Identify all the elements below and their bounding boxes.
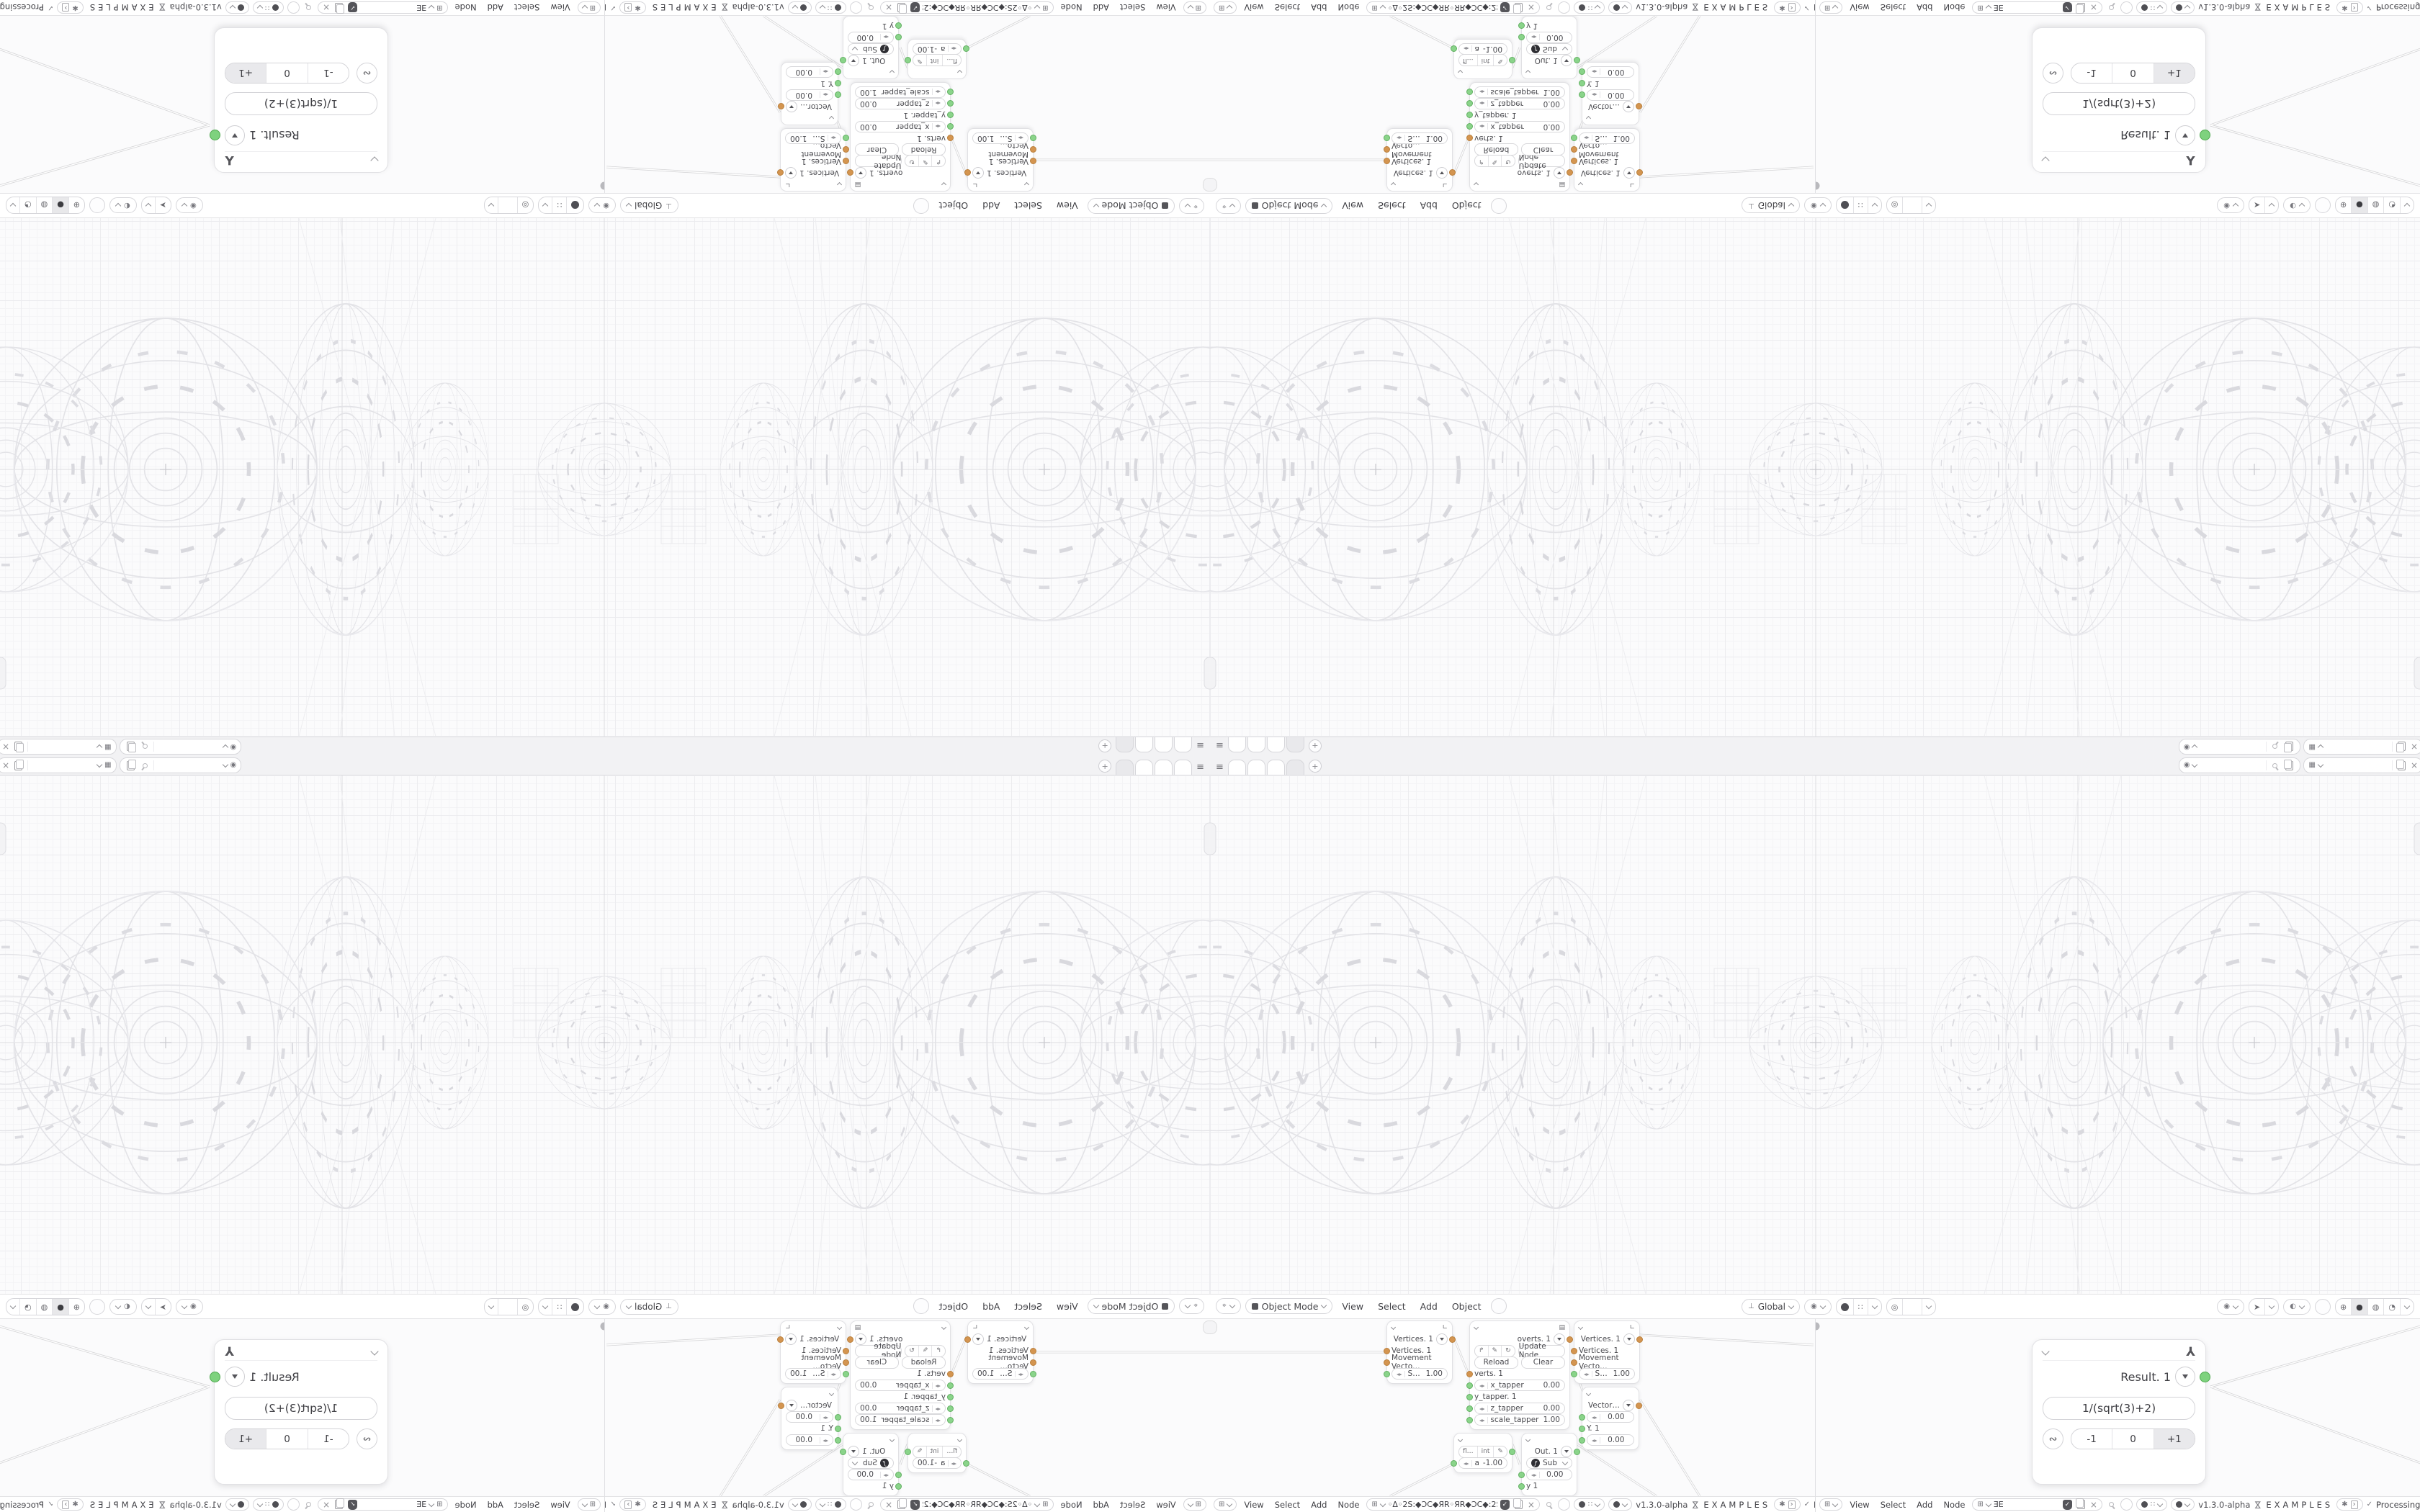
gizmo-dropdown[interactable] — [142, 197, 155, 213]
dropdown-button[interactable] — [785, 167, 797, 179]
collapse-chevron-icon[interactable] — [829, 116, 834, 121]
input-socket[interactable] — [1579, 69, 1585, 76]
menu-node[interactable]: Node — [1943, 1500, 1965, 1510]
xray-toggle[interactable] — [2315, 1299, 2331, 1315]
header-circle-button[interactable] — [850, 1, 862, 14]
shading-material-button[interactable]: ◍ — [36, 1299, 53, 1315]
update-node-button[interactable]: Update Node — [855, 156, 902, 168]
value-slider[interactable]: ◂▸ x_tapper 0.00 — [855, 121, 946, 132]
workspace-tab[interactable] — [1174, 760, 1192, 775]
input-socket[interactable] — [1466, 1417, 1473, 1423]
math-node[interactable]: fl… int ✎ ◂▸ a -1.00 — [1453, 39, 1512, 79]
value-slider[interactable]: ◂▸ Stren 1.00 — [1579, 132, 1635, 144]
drag-handle-icon[interactable]: ◂▸ — [1464, 46, 1472, 53]
vector-node[interactable]: Vector… ◂▸ 0.00 Y. 1 — [1582, 1387, 1639, 1450]
math-node[interactable]: fl… int ✎ ◂▸ a -1.00 — [907, 39, 967, 79]
dropdown-button[interactable] — [786, 101, 797, 112]
node-tree-name-field[interactable]: ƎE — [1994, 3, 2060, 12]
node-header[interactable]: ▤ — [855, 1323, 946, 1332]
drag-handle-icon[interactable]: ◂▸ — [820, 92, 828, 99]
collapse-chevron-icon[interactable] — [1458, 1436, 1463, 1441]
node-header[interactable] — [1458, 1436, 1507, 1444]
int-tab[interactable]: int — [926, 1446, 943, 1457]
drag-handle-icon[interactable]: ◂▸ — [932, 1405, 941, 1412]
node-canvas[interactable]: ⅄ Result. 1 1/(sqrt(3)+2) ∾ -1 0 +1 — [1816, 1319, 2420, 1496]
shading-rendered-button[interactable]: ◔ — [2384, 197, 2401, 213]
type-switch[interactable]: fl… int ✎ — [1458, 1446, 1507, 1458]
overlay-controls[interactable] — [225, 1, 249, 14]
view-layer-selector[interactable]: ▦ × — [0, 757, 117, 773]
output-socket[interactable] — [777, 1336, 784, 1343]
script-node[interactable]: ▤ overts. 1 ↱ ✎ ↻ Update Node — [850, 82, 951, 192]
terminal-icon[interactable]: › — [62, 1500, 69, 1509]
node-header[interactable]: ▤ — [855, 180, 946, 189]
view-layer-field[interactable] — [27, 760, 94, 770]
node-header[interactable] — [913, 68, 962, 76]
app-menu-icon[interactable]: ≡ — [1196, 739, 1204, 750]
input-socket[interactable] — [1030, 1371, 1036, 1377]
collapse-chevron-icon[interactable] — [1024, 182, 1029, 187]
vertices-node[interactable]: ∟ Vertices. 1 Vertices. 1 Movement Vecto… — [967, 128, 1034, 192]
input-socket[interactable] — [835, 1426, 841, 1432]
menu-node[interactable]: Node — [1061, 3, 1083, 13]
workspace-tab[interactable] — [1155, 760, 1173, 775]
transform-orientation-dropdown[interactable]: ⊥ Global — [620, 197, 678, 213]
tool-buttons[interactable]: ✱ › — [619, 1, 645, 14]
input-socket[interactable] — [947, 1394, 954, 1400]
workspace-tab[interactable] — [1155, 737, 1173, 752]
output-socket[interactable] — [1574, 1449, 1580, 1455]
terminal-icon[interactable]: › — [2351, 4, 2358, 12]
script-tools[interactable]: ↱ ✎ ↻ — [1474, 1345, 1515, 1357]
value-field[interactable]: ◂▸ 0.00 — [786, 1411, 833, 1423]
examples-button[interactable]: EXAMPLES — [650, 3, 717, 13]
node-header[interactable]: ∟ — [785, 1323, 841, 1332]
proportional-falloff[interactable] — [1903, 197, 1922, 213]
plus-one-button[interactable]: +1 — [225, 63, 266, 83]
out-node[interactable]: Out. 1 ƒ Sub ◂▸ — [843, 1433, 899, 1496]
pin-icon[interactable] — [141, 743, 148, 750]
node-header[interactable] — [1458, 68, 1507, 76]
editor-type-button[interactable]: ⊞ — [1214, 1498, 1237, 1511]
menu-view[interactable]: View — [1244, 3, 1263, 13]
pencil-icon[interactable]: ✎ — [1489, 1346, 1502, 1356]
node-header[interactable]: ∟ — [1391, 180, 1448, 189]
plus-one-button[interactable]: +1 — [2154, 63, 2195, 83]
arrow-in-icon[interactable]: ↱ — [1475, 156, 1489, 167]
header-circle-button[interactable] — [1558, 1498, 1570, 1511]
output-socket[interactable] — [778, 104, 784, 110]
snapping-controls[interactable]: ∷ — [815, 1, 846, 14]
drag-handle-icon[interactable]: ◂▸ — [1592, 69, 1600, 76]
input-socket[interactable] — [1571, 1359, 1577, 1366]
value-slider[interactable]: ◂▸ scale_tapper 1.00 — [855, 86, 946, 98]
view-layer-selector[interactable]: ▦ × — [0, 739, 117, 755]
dropdown-button[interactable] — [972, 167, 984, 179]
editor-type-button[interactable]: ⌖ — [1179, 1298, 1204, 1314]
editor-type-button[interactable]: ⊞ — [1183, 1498, 1206, 1511]
shading-material-button[interactable]: ◍ — [2368, 1299, 2385, 1315]
menu-select[interactable]: Select — [514, 3, 539, 13]
drag-handle-icon[interactable]: ◂▸ — [948, 1460, 956, 1467]
proportional-dropdown[interactable] — [1922, 197, 1935, 213]
menu-view[interactable]: View — [1156, 1500, 1175, 1510]
header-extra-button[interactable] — [913, 1298, 929, 1314]
header-circle-button[interactable] — [2120, 1498, 2133, 1511]
dropdown-button[interactable] — [225, 125, 245, 145]
fake-user-shield-icon[interactable]: ✓ — [1500, 3, 1510, 13]
menu-object[interactable]: Object — [1452, 201, 1482, 212]
collapse-chevron-icon[interactable] — [2041, 1347, 2049, 1355]
plus-one-button[interactable]: +1 — [2154, 1429, 2195, 1449]
editor-type-button[interactable]: ⌖ — [1216, 198, 1241, 214]
vertices-node[interactable]: ∟ Vertices. 1 Vertices. 1 Movement Vecto… — [780, 128, 846, 192]
header-circle-button[interactable] — [850, 1498, 862, 1511]
value-slider[interactable]: ◂▸ scale_tapper 1.00 — [1474, 86, 1565, 98]
overlay-controls[interactable] — [1608, 1498, 1632, 1511]
output-socket[interactable] — [210, 1372, 220, 1382]
vector-node[interactable]: Vector… ◂▸ 0.00 Y. 1 — [781, 1387, 838, 1450]
node-canvas[interactable]: ⅄ Result. 1 1/(sqrt(3)+2) ∾ -1 0 +1 — [0, 16, 604, 193]
shading-solid-button[interactable]: ● — [2352, 1299, 2368, 1315]
dropdown-button[interactable] — [848, 55, 859, 66]
drag-handle-icon[interactable]: ◂▸ — [1592, 1437, 1600, 1444]
input-socket[interactable] — [1571, 135, 1577, 142]
value-field[interactable]: ◂▸ 0.00 — [848, 32, 894, 43]
value-slider[interactable]: ◂▸ x_tapper 0.00 — [855, 1380, 946, 1391]
scene-selector[interactable]: ◉ — [120, 739, 242, 755]
input-socket[interactable] — [1466, 135, 1473, 142]
node-header[interactable]: ∟ — [1391, 1323, 1448, 1332]
menu-view[interactable]: View — [550, 3, 570, 13]
input-socket[interactable] — [843, 1359, 849, 1366]
proportional-dropdown[interactable] — [485, 1299, 498, 1315]
workspace-tab[interactable] — [1247, 737, 1265, 752]
float-tab[interactable]: fl… — [1459, 1446, 1478, 1457]
pencil-icon[interactable]: ✎ — [918, 1346, 932, 1356]
input-socket[interactable] — [1518, 23, 1525, 30]
drag-handle-icon[interactable]: ◂▸ — [1015, 1371, 1023, 1377]
formula-field[interactable]: 1/(sqrt(3)+2) — [2043, 92, 2195, 115]
minus-one-button[interactable]: -1 — [308, 1429, 349, 1449]
menu-view[interactable]: View — [1156, 3, 1175, 13]
pivot-point-dropdown[interactable]: ◉ — [1804, 1299, 1832, 1315]
visibility-dropdown[interactable]: ◉ — [176, 197, 203, 213]
copy-icon[interactable] — [127, 761, 135, 770]
snap-magnet-icon[interactable] — [1837, 197, 1854, 213]
output-socket[interactable] — [905, 58, 911, 64]
dropdown-button[interactable] — [1561, 55, 1572, 66]
node-header[interactable]: ∟ — [1579, 1323, 1635, 1332]
proportional-edit-controls[interactable]: ◎ — [484, 197, 534, 214]
snap-with-icon[interactable]: ∷ — [552, 197, 566, 213]
value-field[interactable]: ◂▸ 0.00 — [1587, 1411, 1634, 1423]
input-socket[interactable] — [1466, 124, 1473, 130]
unlink-icon[interactable]: × — [2090, 1500, 2097, 1510]
tool-buttons[interactable]: ✱ › — [2336, 1498, 2362, 1511]
menu-view[interactable]: View — [1244, 1500, 1263, 1510]
collapse-chevron-icon[interactable] — [957, 70, 962, 75]
drag-handle-icon[interactable]: ◂▸ — [1584, 1371, 1592, 1377]
input-socket[interactable] — [947, 1405, 954, 1412]
input-socket[interactable] — [1466, 1371, 1473, 1377]
drag-handle-icon[interactable]: ◂▸ — [1592, 1414, 1600, 1421]
dropdown-button[interactable] — [225, 1367, 245, 1387]
vertices-node[interactable]: ∟ Vertices. 1 Vertices. 1 Movement Vecto… — [780, 1320, 846, 1384]
header-circle-button[interactable] — [287, 1, 300, 14]
proportional-edit-controls[interactable]: ◎ — [1886, 197, 1937, 214]
dropdown-button[interactable] — [1623, 101, 1634, 112]
zero-button[interactable]: 0 — [266, 1429, 307, 1449]
fake-user-shield-icon[interactable]: ✓ — [348, 1500, 357, 1510]
menu-view[interactable]: View — [1057, 1301, 1078, 1312]
unlink-icon[interactable]: × — [323, 3, 330, 13]
terminal-icon[interactable]: › — [624, 1500, 632, 1509]
value-field[interactable]: ◂▸ 0.00 — [786, 1434, 833, 1446]
node-header[interactable]: ⅄ — [2043, 151, 2195, 168]
drag-handle-icon[interactable]: ◂▸ — [820, 1414, 828, 1421]
refresh-icon[interactable]: ↻ — [905, 156, 918, 167]
unlink-icon[interactable]: × — [2090, 3, 2097, 13]
header-extra-button[interactable] — [1491, 1298, 1507, 1314]
clear-button[interactable]: Clear — [1521, 144, 1565, 156]
collapse-chevron-icon[interactable] — [1024, 1324, 1029, 1329]
workspace-tab[interactable] — [1247, 760, 1265, 775]
result-node[interactable]: ⅄ Result. 1 1/(sqrt(3)+2) ∾ -1 0 +1 — [2032, 27, 2206, 173]
viewport-3d[interactable] — [0, 775, 1210, 1294]
type-switch[interactable]: fl… int ✎ — [913, 1446, 962, 1458]
menu-node[interactable]: Node — [455, 1500, 477, 1510]
transform-orientation-dropdown[interactable]: ⊥ Global — [620, 1299, 678, 1315]
snapping-controls[interactable]: ∷ — [538, 197, 584, 214]
menu-select[interactable]: Select — [1120, 1500, 1145, 1510]
copy-icon[interactable] — [2285, 761, 2293, 770]
node-tree-name-field[interactable]: ◦Δ◦2S:◆ƆC◆ЯR◦ЯR◆ƆC◆:2S◦Δ◦ — [923, 1500, 1032, 1509]
script-tools[interactable]: ↱ ✎ ↻ — [1474, 156, 1515, 168]
proportional-dropdown[interactable] — [485, 197, 498, 213]
visibility-dropdown[interactable]: ◉ — [176, 1299, 203, 1315]
node-header[interactable]: ∟ — [972, 180, 1028, 189]
menu-select[interactable]: Select — [1275, 1500, 1300, 1510]
zero-button[interactable]: 0 — [2112, 63, 2154, 83]
plus-one-button[interactable]: +1 — [225, 1429, 266, 1449]
fake-user-shield-icon[interactable]: ✓ — [1500, 1500, 1510, 1510]
proportional-edit-controls[interactable]: ◎ — [1886, 1298, 1937, 1315]
drag-handle-icon[interactable]: ◂▸ — [1479, 101, 1488, 107]
unlink-icon[interactable]: × — [323, 1500, 330, 1510]
zero-button[interactable]: 0 — [266, 63, 307, 83]
drag-handle-icon[interactable]: ◂▸ — [820, 1437, 828, 1444]
value-slider[interactable]: ◂▸ a -1.00 — [913, 1457, 962, 1469]
transform-orientation-dropdown[interactable]: ⊥ Global — [1742, 1299, 1800, 1315]
pin-icon[interactable] — [305, 1501, 313, 1508]
input-socket[interactable] — [843, 1371, 849, 1377]
new-copy-icon[interactable] — [2077, 1500, 2085, 1509]
value-slider[interactable]: ◂▸ Stren 1.00 — [1391, 132, 1448, 144]
input-socket[interactable] — [1579, 1414, 1585, 1421]
node-header[interactable] — [1526, 1436, 1572, 1444]
value-slider[interactable]: ◂▸ a -1.00 — [1458, 43, 1507, 55]
node-header[interactable] — [848, 1436, 894, 1444]
loop-button[interactable]: ∾ — [2043, 1428, 2063, 1449]
drag-handle-icon[interactable]: ◂▸ — [828, 1371, 836, 1377]
input-socket[interactable] — [1571, 1348, 1577, 1354]
editor-type-button[interactable]: ⊞ — [578, 1498, 601, 1511]
editor-type-button[interactable]: ⊞ — [578, 1, 601, 14]
collapse-chevron-icon[interactable] — [829, 1390, 834, 1395]
unlink-icon[interactable]: × — [1528, 3, 1535, 13]
scene-selector[interactable]: ◉ — [2179, 739, 2301, 755]
reload-button[interactable]: Reload — [1474, 1356, 1518, 1369]
node-header[interactable]: ⅄ — [225, 151, 377, 168]
dropdown-button[interactable] — [786, 1400, 797, 1411]
pin-icon[interactable] — [1545, 4, 1552, 12]
viewport-3d[interactable] — [1210, 775, 2420, 1294]
refresh-icon[interactable]: ↻ — [905, 1346, 918, 1356]
menu-add[interactable]: Add — [982, 1301, 1000, 1312]
proportional-falloff[interactable] — [498, 197, 517, 213]
menu-node[interactable]: Node — [1337, 3, 1359, 13]
output-socket[interactable] — [964, 1336, 971, 1343]
dropdown-button[interactable] — [1623, 167, 1635, 179]
script-nodes-icon[interactable]: ✱ — [635, 1501, 640, 1508]
input-socket[interactable] — [947, 1371, 954, 1377]
pivot-point-dropdown[interactable]: ◉ — [588, 197, 616, 213]
editor-type-button[interactable]: ⌖ — [1216, 1298, 1241, 1314]
update-node-button[interactable]: Update Node — [1518, 156, 1565, 168]
node-tree-selector[interactable]: ⊞ ƎE ✓ × — [1972, 1498, 2102, 1511]
dropdown-button[interactable] — [848, 1446, 859, 1457]
output-socket[interactable] — [1636, 1336, 1643, 1343]
snap-magnet-icon[interactable] — [566, 197, 583, 213]
workspace-tab[interactable] — [1267, 737, 1285, 752]
collapse-chevron-icon[interactable] — [889, 70, 895, 75]
app-menu-icon[interactable]: ≡ — [1216, 762, 1224, 773]
gizmo-icon[interactable]: ➤ — [155, 197, 171, 213]
overlay-controls[interactable] — [2171, 1, 2195, 14]
drag-handle-icon[interactable]: ◂▸ — [1015, 135, 1023, 142]
input-socket[interactable] — [1384, 147, 1390, 153]
dropdown-button[interactable] — [2175, 125, 2195, 145]
value-field[interactable]: ◂▸ 0.00 — [848, 1469, 894, 1480]
loop-button[interactable]: ∾ — [357, 63, 377, 84]
input-socket[interactable] — [1384, 1359, 1390, 1366]
examples-button[interactable]: EXAMPLES — [87, 1500, 154, 1510]
input-socket[interactable] — [843, 1348, 849, 1354]
loop-button[interactable]: ∾ — [2043, 63, 2063, 84]
value-field[interactable]: ◂▸ 0.00 — [1526, 1469, 1572, 1480]
type-switch[interactable]: fl… int ✎ — [913, 55, 962, 67]
menu-view[interactable]: View — [1850, 3, 1869, 13]
value-field[interactable]: ◂▸ 0.00 — [786, 89, 833, 101]
value-slider[interactable]: ◂▸ z_tapper 0.00 — [855, 98, 946, 109]
value-field[interactable]: ◂▸ 0.00 — [1587, 66, 1634, 78]
shading-mode-controls[interactable]: ⊕ ● ◍ ◔ — [2335, 197, 2414, 214]
value-field[interactable]: ◂▸ 0.00 — [1526, 32, 1572, 43]
scene-selector[interactable]: ◉ — [2179, 757, 2301, 773]
collapse-chevron-icon[interactable] — [941, 1324, 946, 1329]
dropdown-button[interactable] — [1623, 1400, 1634, 1411]
script-nodes-icon[interactable]: ✱ — [635, 4, 640, 12]
input-socket[interactable] — [1030, 1348, 1036, 1354]
terminal-icon[interactable]: › — [62, 4, 69, 12]
arrow-in-icon[interactable]: ↱ — [1475, 1346, 1489, 1356]
tool-buttons[interactable]: ✱ › — [1774, 1498, 1800, 1511]
output-socket[interactable] — [1636, 1403, 1642, 1409]
new-copy-icon[interactable] — [1515, 1500, 1523, 1509]
shading-solid-button[interactable]: ● — [52, 197, 68, 213]
input-socket[interactable] — [1030, 1359, 1036, 1366]
menu-select[interactable]: Select — [1275, 3, 1300, 13]
add-workspace-button[interactable]: + — [1309, 739, 1322, 752]
snapping-controls[interactable]: ∷ — [1836, 197, 1882, 214]
menu-add[interactable]: Add — [1917, 1500, 1932, 1510]
output-socket[interactable] — [964, 170, 971, 176]
input-socket[interactable] — [835, 1414, 841, 1421]
mode-dropdown[interactable]: Object Mode — [1088, 198, 1175, 214]
value-slider[interactable]: ◂▸ z_tapper 0.00 — [855, 1403, 946, 1414]
reload-button[interactable]: Reload — [1474, 144, 1518, 156]
node-header[interactable] — [1587, 1390, 1634, 1398]
menu-view[interactable]: View — [550, 1500, 570, 1510]
examples-button[interactable]: EXAMPLES — [2266, 3, 2333, 13]
xray-toggle[interactable] — [89, 1299, 105, 1315]
workspace-tab[interactable] — [1135, 760, 1153, 775]
snap-magnet-icon[interactable] — [566, 1299, 583, 1315]
pin-icon[interactable] — [2107, 1501, 2115, 1508]
drag-handle-icon[interactable]: ◂▸ — [932, 1417, 941, 1423]
operation-dropdown[interactable]: ƒ Sub — [848, 43, 894, 55]
result-node[interactable]: ⅄ Result. 1 1/(sqrt(3)+2) ∾ -1 0 +1 — [2032, 1339, 2206, 1485]
vertices-node[interactable]: ∟ Vertices. 1 Vertices. 1 Movement Vecto… — [1386, 128, 1453, 192]
clear-button[interactable]: Clear — [1521, 1356, 1565, 1369]
unlink-icon[interactable]: × — [885, 3, 892, 13]
shading-wireframe-button[interactable]: ⊕ — [2336, 1299, 2352, 1315]
gizmo-icon[interactable]: ➤ — [2249, 1299, 2265, 1315]
node-header[interactable] — [786, 114, 833, 122]
collapse-chevron-icon[interactable] — [1586, 116, 1591, 121]
collapse-chevron-icon[interactable] — [837, 182, 842, 187]
collapse-chevron-icon[interactable] — [1458, 70, 1463, 75]
viewport-3d[interactable] — [0, 218, 1210, 737]
scene-name-field[interactable] — [153, 742, 220, 752]
overlay-controls[interactable] — [788, 1498, 812, 1511]
overlay-controls[interactable] — [2171, 1498, 2195, 1511]
input-socket[interactable] — [835, 1437, 841, 1444]
output-socket[interactable] — [778, 1403, 784, 1409]
math-node[interactable]: fl… int ✎ ◂▸ a -1.00 — [1453, 1433, 1512, 1473]
value-slider[interactable]: ◂▸ a -1.00 — [1458, 1457, 1507, 1469]
float-tab[interactable]: fl… — [942, 1446, 961, 1457]
gizmo-controls[interactable]: ➤ — [2249, 197, 2279, 214]
pin-icon[interactable] — [2272, 743, 2279, 750]
output-socket[interactable] — [1509, 1449, 1515, 1455]
input-socket[interactable] — [1384, 1348, 1390, 1354]
menu-object[interactable]: Object — [938, 201, 968, 212]
examples-button[interactable]: EXAMPLES — [1703, 3, 1770, 13]
snap-magnet-icon[interactable] — [1837, 1299, 1854, 1315]
snap-with-icon[interactable]: ∷ — [1854, 197, 1868, 213]
reload-button[interactable]: Reload — [902, 1356, 946, 1369]
workspace-tab-active[interactable] — [1286, 737, 1304, 752]
drag-handle-icon[interactable]: ◂▸ — [932, 101, 941, 107]
editor-type-button[interactable]: ⊞ — [1819, 1, 1842, 14]
overlay-controls[interactable] — [788, 1, 812, 14]
gizmo-dropdown[interactable] — [2265, 197, 2278, 213]
xray-toggle[interactable] — [2315, 197, 2331, 213]
pencil-icon[interactable]: ✎ — [913, 1446, 926, 1457]
input-socket[interactable] — [1579, 1437, 1585, 1444]
